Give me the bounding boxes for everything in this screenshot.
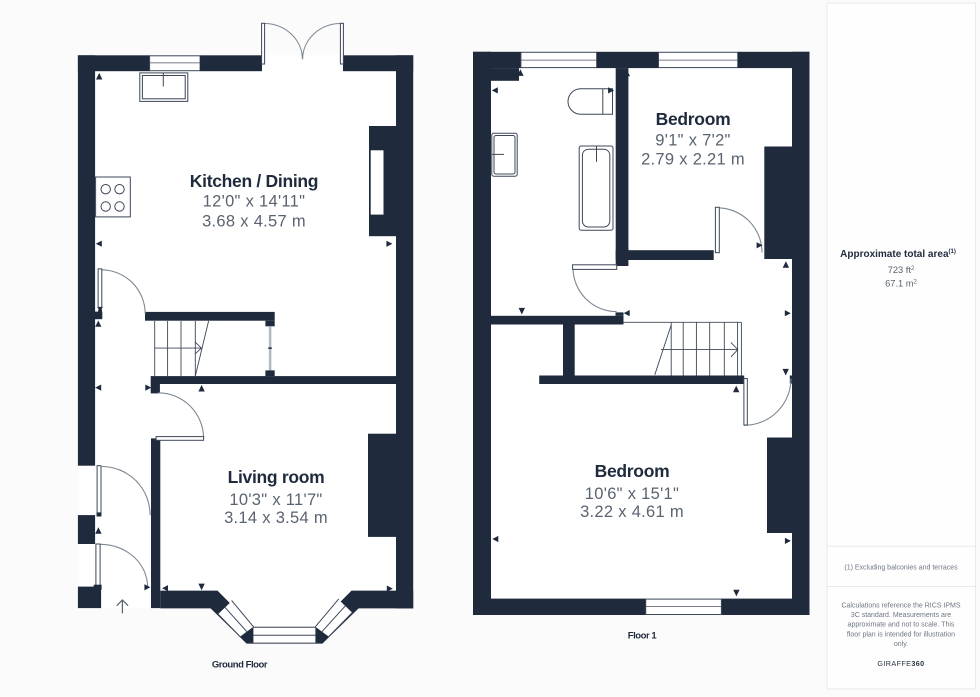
svg-text:3.14 x 3.54 m: 3.14 x 3.54 m <box>224 509 328 527</box>
svg-text:Living room: Living room <box>228 467 325 487</box>
svg-text:approximate and not to scale.: approximate and not to scale. This <box>848 622 955 629</box>
svg-text:Floor 1: Floor 1 <box>628 630 658 641</box>
svg-text:Bedroom: Bedroom <box>656 109 731 129</box>
svg-text:9'1" x 7'2": 9'1" x 7'2" <box>655 132 730 150</box>
svg-text:10'6" x 15'1": 10'6" x 15'1" <box>585 485 679 503</box>
svg-text:2.79 x 2.21 m: 2.79 x 2.21 m <box>641 151 745 169</box>
svg-text:GIRAFFE360: GIRAFFE360 <box>877 659 924 668</box>
svg-text:3.68 x 4.57 m: 3.68 x 4.57 m <box>202 213 306 231</box>
svg-text:only.: only. <box>894 641 908 648</box>
svg-text:723 ft2: 723 ft2 <box>888 265 915 275</box>
svg-text:Ground Floor: Ground Floor <box>212 659 268 670</box>
svg-text:12'0" x 14'11": 12'0" x 14'11" <box>203 193 306 211</box>
svg-text:Bedroom: Bedroom <box>595 461 670 481</box>
svg-text:3.22 x 4.61 m: 3.22 x 4.61 m <box>580 503 684 521</box>
svg-text:Kitchen / Dining: Kitchen / Dining <box>190 171 318 191</box>
svg-text:Approximate total area(1): Approximate total area(1) <box>840 249 956 260</box>
svg-text:67.1 m2: 67.1 m2 <box>885 279 917 289</box>
svg-text:(1) Excluding balconies and te: (1) Excluding balconies and terraces <box>844 565 958 572</box>
svg-text:Calculations reference the RIC: Calculations reference the RICS IPMS <box>841 603 960 610</box>
svg-text:floor plan is intended for ill: floor plan is intended for illustration <box>847 631 955 638</box>
svg-text:10'3" x 11'7": 10'3" x 11'7" <box>229 491 322 509</box>
svg-text:3C standard. Measurements are: 3C standard. Measurements are <box>851 612 951 619</box>
